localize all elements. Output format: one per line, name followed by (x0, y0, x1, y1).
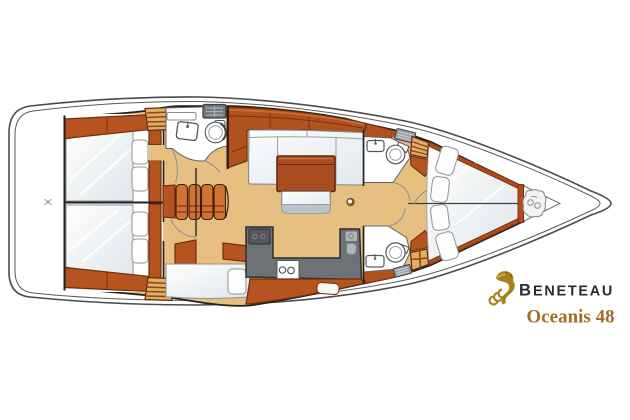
svg-text:Oceanis 48: Oceanis 48 (527, 307, 615, 328)
svg-text:ENETEAU: ENETEAU (533, 284, 614, 300)
svg-text:B: B (519, 281, 531, 300)
